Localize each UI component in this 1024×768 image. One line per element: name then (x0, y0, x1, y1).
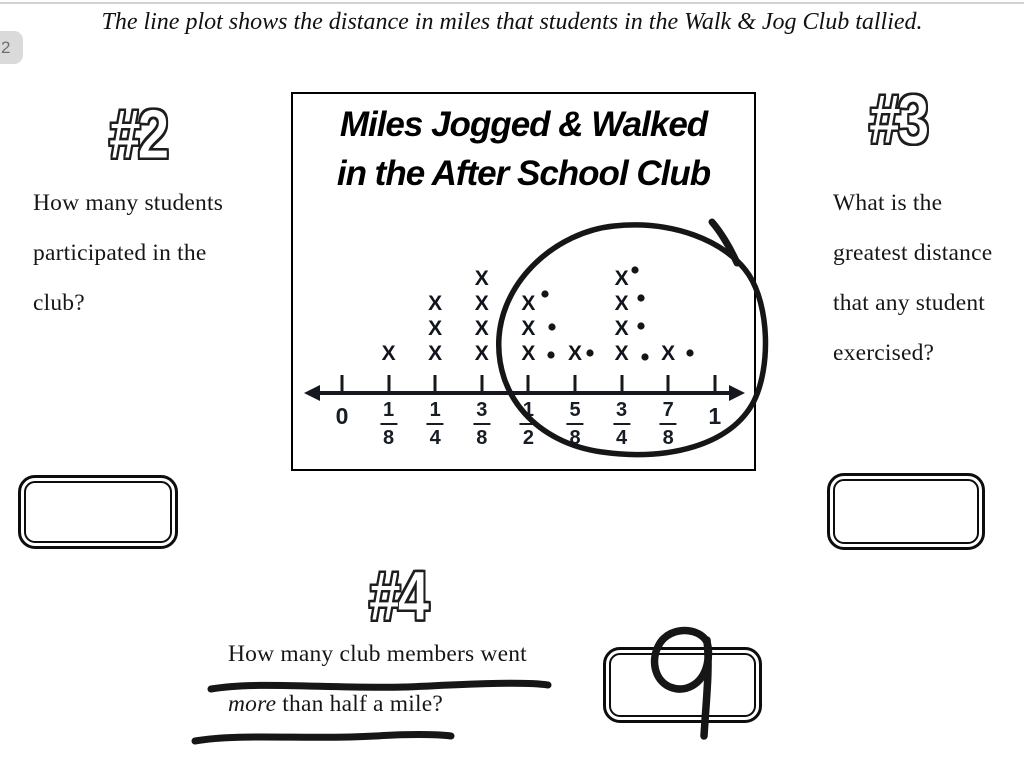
axis-label: 38 (473, 400, 490, 449)
axis-tick (667, 375, 670, 392)
fraction-numerator: 7 (660, 400, 677, 425)
fraction-denominator: 4 (613, 425, 630, 449)
line-plot-canvas: 018X14XXX38XXXX12XXX58X34XXXX78X1 (293, 94, 754, 469)
question-line: How many club members went (228, 629, 527, 679)
fraction-denominator: 2 (520, 425, 537, 449)
axis-label: 12 (520, 400, 537, 449)
axis-tick (713, 375, 716, 392)
x-mark: X (615, 267, 629, 291)
fraction-denominator: 8 (566, 425, 583, 449)
answer-box-inner (24, 481, 172, 543)
axis-tick (387, 375, 390, 392)
answer-box-q2[interactable] (18, 475, 178, 549)
axis-label: 14 (427, 400, 444, 449)
fraction-numerator: 1 (380, 400, 397, 425)
question-line: more than half a mile? (228, 679, 527, 729)
fraction-denominator: 4 (427, 425, 444, 449)
axis-label: 1 (708, 403, 721, 430)
x-mark: X (475, 267, 489, 291)
x-mark: X (521, 292, 535, 316)
question-4-text: How many club members went more than hal… (228, 629, 527, 729)
axis-tick (620, 375, 623, 392)
worksheet-page: 2 The line plot shows the distance in mi… (0, 0, 1024, 768)
axis-tick (341, 375, 344, 392)
question-2-text: How many students participated in the cl… (33, 178, 223, 328)
axis-tick (574, 375, 577, 392)
x-mark: X (428, 292, 442, 316)
fraction-numerator: 3 (473, 400, 490, 425)
x-mark: X (428, 342, 442, 366)
answer-box-inner (609, 653, 756, 717)
x-mark: X (475, 292, 489, 316)
question-line: How many students (33, 178, 223, 228)
question-3-text: What is the greatest distance that any s… (833, 178, 992, 378)
x-mark: X (615, 342, 629, 366)
x-mark: X (615, 317, 629, 341)
answer-box-inner (833, 479, 979, 544)
axis-tick (480, 375, 483, 392)
x-mark: X (615, 292, 629, 316)
fraction-numerator: 1 (520, 400, 537, 425)
fraction-denominator: 8 (473, 425, 490, 449)
fraction-denominator: 8 (660, 425, 677, 449)
question-line: greatest distance (833, 228, 992, 278)
x-mark: X (428, 317, 442, 341)
fraction-numerator: 5 (566, 400, 583, 425)
question-line-rest: than half a mile? (276, 691, 443, 717)
fraction-numerator: 1 (427, 400, 444, 425)
instruction-text: The line plot shows the distance in mile… (0, 5, 1024, 39)
x-mark: X (475, 342, 489, 366)
fraction-numerator: 3 (613, 400, 630, 425)
axis-label: 0 (336, 403, 349, 430)
question-2-number: #2 (49, 99, 225, 169)
axis-arrow-right-icon (729, 385, 745, 401)
x-mark: X (521, 317, 535, 341)
axis-label: 78 (660, 400, 677, 449)
pen-underline-2 (195, 735, 451, 742)
axis-tick (434, 375, 437, 392)
x-mark: X (568, 342, 582, 366)
question-4-number: #4 (309, 561, 485, 631)
x-mark: X (521, 342, 535, 366)
x-mark: X (475, 317, 489, 341)
page-number-label: 2 (0, 38, 10, 58)
x-mark: X (382, 342, 396, 366)
question-line: exercised? (833, 328, 992, 378)
question-line: that any student (833, 278, 992, 328)
axis-label: 18 (380, 400, 397, 449)
question-line: participated in the (33, 228, 223, 278)
answer-box-q3[interactable] (827, 473, 985, 550)
fraction-denominator: 8 (380, 425, 397, 449)
emphasized-word: more (228, 691, 276, 717)
answer-box-q4[interactable] (603, 647, 762, 723)
axis-label: 34 (613, 400, 630, 449)
x-mark: X (661, 342, 675, 366)
axis-tick (527, 375, 530, 392)
question-3-number: #3 (809, 84, 985, 154)
top-divider (0, 2, 1024, 4)
axis-label: 58 (566, 400, 583, 449)
question-line: What is the (833, 178, 992, 228)
question-line: club? (33, 278, 223, 328)
line-plot-figure: Miles Jogged & Walked in the After Schoo… (291, 92, 756, 471)
axis-arrow-left-icon (304, 385, 320, 401)
